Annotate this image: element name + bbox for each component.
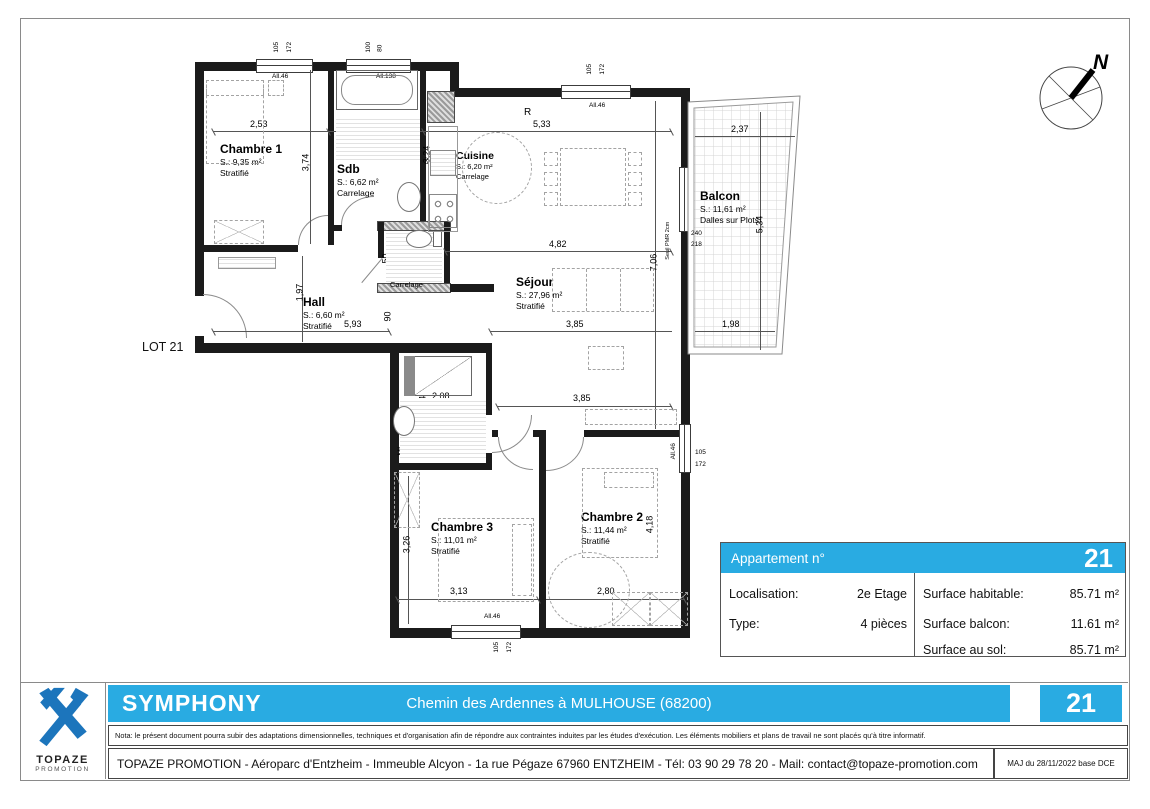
toilet-bowl	[406, 230, 432, 248]
room-label-balcon: Balcon S.: 11,61 m² Dalles sur Plots	[700, 190, 759, 226]
window-sill-label: All.46	[589, 103, 605, 110]
furniture-dresser	[585, 409, 677, 425]
dim-line	[695, 136, 795, 137]
logo-name: TOPAZE	[20, 754, 105, 766]
dim-label: 3,74	[301, 154, 310, 172]
room-name: Sdb	[337, 163, 379, 177]
row-label: Surface balcon:	[923, 617, 1010, 631]
dim-label: 5,93	[344, 320, 362, 329]
furniture-shelf	[218, 257, 276, 269]
room-floor: Stratifié	[220, 168, 282, 179]
furniture-nightstand	[268, 80, 284, 96]
lot-number-badge: 21	[1040, 685, 1122, 722]
apartment-number: 21	[1084, 545, 1113, 571]
washbasin	[393, 406, 415, 436]
wall-segment	[328, 62, 334, 245]
furniture-dining-table	[560, 148, 626, 206]
wall-segment	[539, 430, 546, 628]
row-value: 4 pièces	[860, 617, 907, 631]
dim-label: 3,85	[573, 394, 591, 403]
bathtub-inner	[341, 75, 413, 105]
dim-label: 218	[691, 242, 702, 249]
window-size-label: 100	[366, 42, 373, 53]
wall-segment	[584, 430, 690, 437]
window-size-label: 172	[507, 642, 514, 653]
window-size-label: 172	[695, 462, 706, 469]
room-area: S.: 6,62 m²	[337, 177, 379, 188]
dim-line	[445, 251, 672, 252]
window-sill-label: All.46	[671, 443, 678, 459]
dim-label: 3,26	[402, 536, 411, 554]
wall-segment	[334, 225, 342, 231]
window	[561, 85, 631, 99]
compass-north-label: N	[1093, 52, 1108, 73]
dim-label: 3,85	[566, 320, 584, 329]
furniture-sofa	[552, 268, 654, 312]
window	[451, 625, 521, 639]
furniture-wardrobe	[214, 220, 264, 244]
furniture-wardrobe	[650, 592, 688, 626]
nota-text: Nota: le présent document pourra subir d…	[108, 725, 1128, 746]
washbasin	[397, 182, 421, 212]
info-table-title: Appartement n°	[731, 551, 825, 566]
topaze-logo-icon	[35, 686, 91, 748]
room-label-hall: Hall S.: 6,60 m² Stratifié	[303, 296, 345, 332]
row-label: Surface habitable:	[923, 587, 1024, 601]
room-name: Balcon	[700, 190, 759, 204]
dim-label: 5,33	[533, 120, 551, 129]
window-sill-label: All.46	[484, 614, 500, 621]
tiled-floor	[336, 116, 420, 160]
dim-line	[695, 331, 775, 332]
row-label: Surface au sol:	[923, 643, 1006, 657]
dim-line	[490, 331, 672, 332]
floor-plan-page: N 2,53 1,89 5,33 4,82 5,93 3,85 3,85 3,1…	[0, 0, 1150, 809]
table-row: Localisation: 2e Etage	[729, 587, 907, 603]
furniture-chair	[628, 152, 642, 166]
threshold-label: Seuil PMR 2cm	[666, 222, 672, 260]
table-row: Surface au sol: 85.71 m²	[923, 643, 1119, 659]
table-divider	[914, 573, 915, 656]
project-name: SYMPHONY	[108, 690, 262, 717]
furniture-detail	[586, 269, 587, 311]
furniture-detail	[620, 269, 621, 311]
wall-segment	[444, 222, 450, 292]
window-size-label: 105	[494, 642, 501, 653]
window-size-label: 105	[695, 450, 706, 457]
wall-segment	[390, 628, 690, 638]
dim-line	[497, 406, 672, 407]
table-row: Type: 4 pièces	[729, 617, 907, 633]
furniture-round-table	[462, 132, 532, 204]
dim-label: 90	[384, 311, 393, 321]
row-value: 85.71 m²	[1070, 643, 1119, 657]
toilet-tank	[433, 231, 442, 247]
window-size-label: 80	[377, 45, 384, 52]
kitchen-sink	[430, 150, 456, 176]
furniture-chair	[544, 192, 558, 206]
row-label: Type:	[729, 617, 760, 631]
furniture-detail	[604, 472, 654, 488]
furniture-chair	[544, 172, 558, 186]
info-table-header: Appartement n° 21	[721, 543, 1125, 573]
dim-label: 1,98	[722, 320, 740, 329]
window	[256, 59, 313, 73]
furniture-detail	[512, 524, 532, 596]
wall-segment	[195, 62, 204, 302]
window	[679, 424, 691, 473]
dim-label: 4,82	[549, 240, 567, 249]
fridge-label: R	[524, 108, 531, 118]
window-size-label: 172	[600, 64, 607, 75]
furniture-chair	[628, 172, 642, 186]
furniture-wardrobe	[612, 592, 650, 626]
room-floor: Stratifié	[303, 321, 345, 332]
company-logo: TOPAZE PROMOTION	[20, 682, 106, 779]
revision-date: MAJ du 28/11/2022 base DCE	[994, 748, 1128, 779]
apartment-info-table: Appartement n° 21 Localisation: 2e Etage…	[720, 542, 1126, 657]
shower-wall	[404, 356, 415, 396]
window-size-label: 105	[587, 64, 594, 75]
wall-segment	[450, 284, 494, 292]
wall-segment	[390, 343, 492, 353]
wall-segment	[395, 463, 492, 470]
logo-subtitle: PROMOTION	[20, 766, 105, 773]
furniture-detail	[206, 80, 264, 96]
table-row: Surface balcon: 11.61 m²	[923, 617, 1119, 633]
window-size-label: 105	[274, 42, 281, 53]
lot-label: LOT 21	[142, 340, 183, 354]
row-value: 2e Etage	[857, 587, 907, 601]
dim-label: 2,37	[731, 125, 749, 134]
row-value: 11.61 m²	[1071, 617, 1119, 631]
footer-divider	[20, 682, 1128, 683]
stove	[429, 194, 457, 228]
wall-segment	[195, 62, 458, 71]
dim-label: 240	[691, 231, 702, 238]
room-floor: Dalles sur Plots	[700, 215, 759, 226]
duct-shaft	[428, 92, 454, 122]
wall-segment	[486, 353, 492, 415]
window-size-label: 172	[287, 42, 294, 53]
room-area: S.: 11,61 m²	[700, 204, 759, 215]
wall-segment	[204, 245, 298, 252]
project-title-bar: Chemin des Ardennes à MULHOUSE (68200) S…	[108, 685, 1010, 722]
wall-segment	[195, 343, 395, 353]
company-address: TOPAZE PROMOTION - Aéroparc d'Entzheim -…	[108, 748, 994, 779]
table-row: Surface habitable: 85.71 m²	[923, 587, 1119, 603]
row-label: Localisation:	[729, 587, 799, 601]
room-name: Hall	[303, 296, 345, 310]
shower	[414, 356, 472, 396]
furniture-coffee-table	[588, 346, 624, 370]
furniture-chair	[544, 152, 558, 166]
row-value: 85.71 m²	[1070, 587, 1119, 601]
room-label-sdb: Sdb S.: 6,62 m² Carrelage	[337, 163, 379, 199]
room-floor: Carrelage	[337, 188, 379, 199]
furniture-wardrobe	[394, 472, 420, 528]
furniture-chair	[628, 192, 642, 206]
room-area: S.: 6,60 m²	[303, 310, 345, 321]
